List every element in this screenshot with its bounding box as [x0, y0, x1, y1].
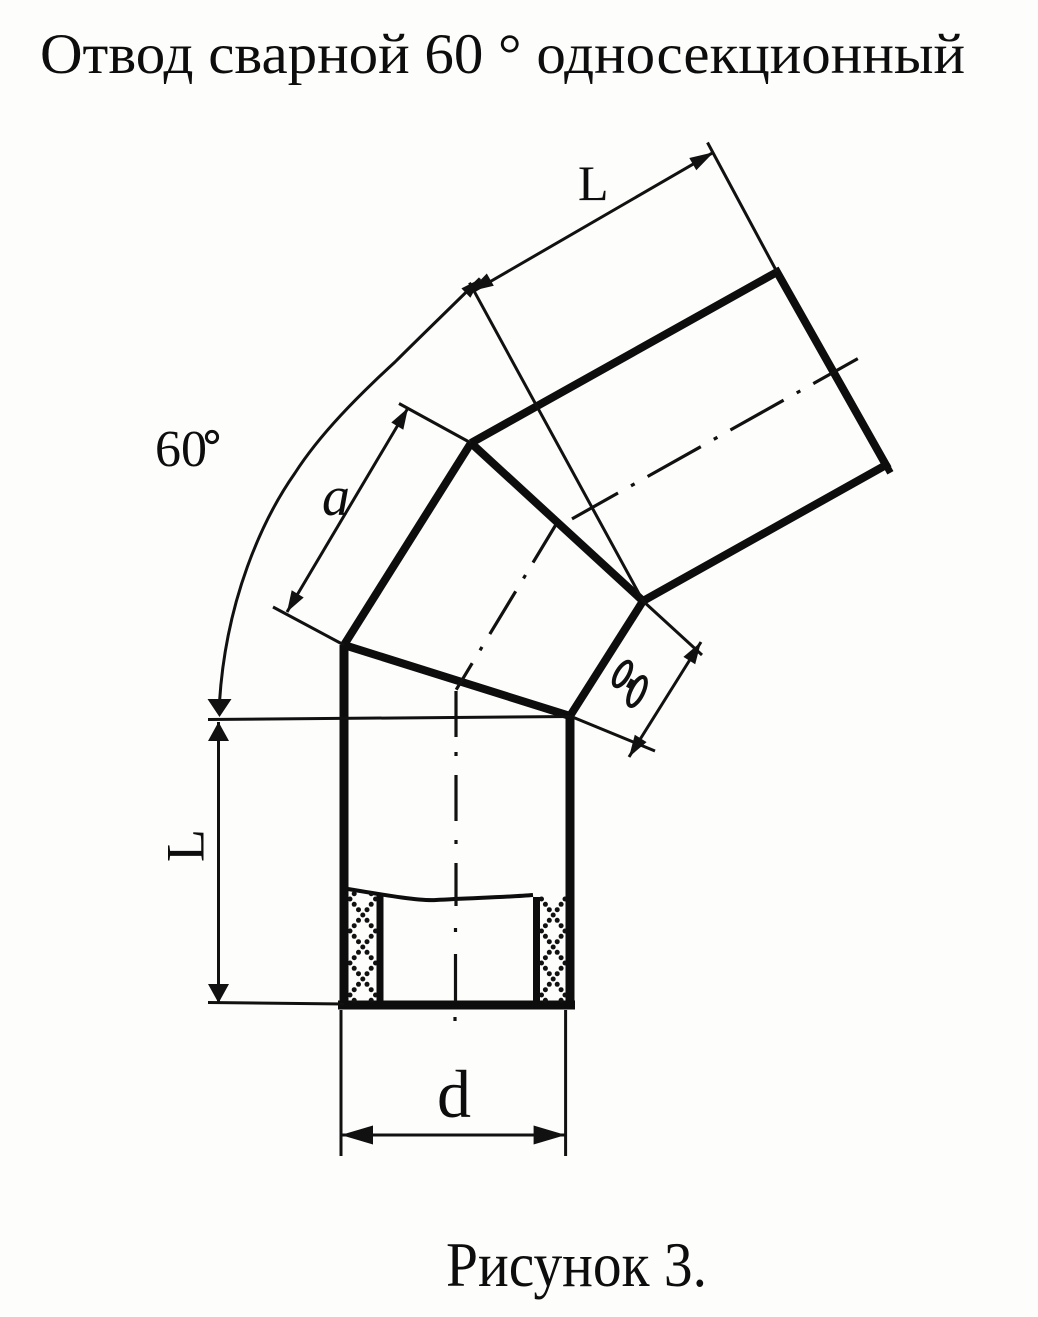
svg-text:d: d [437, 1056, 471, 1132]
svg-text:L: L [156, 829, 216, 862]
svg-text:L: L [578, 155, 609, 211]
svg-text:Рисунок 3.: Рисунок 3. [446, 1229, 707, 1300]
svg-text:Отвод сварной 60 ° односекцион: Отвод сварной 60 ° односекционный [40, 23, 965, 86]
svg-text:60: 60 [155, 421, 207, 478]
svg-text:a: a [322, 466, 350, 528]
